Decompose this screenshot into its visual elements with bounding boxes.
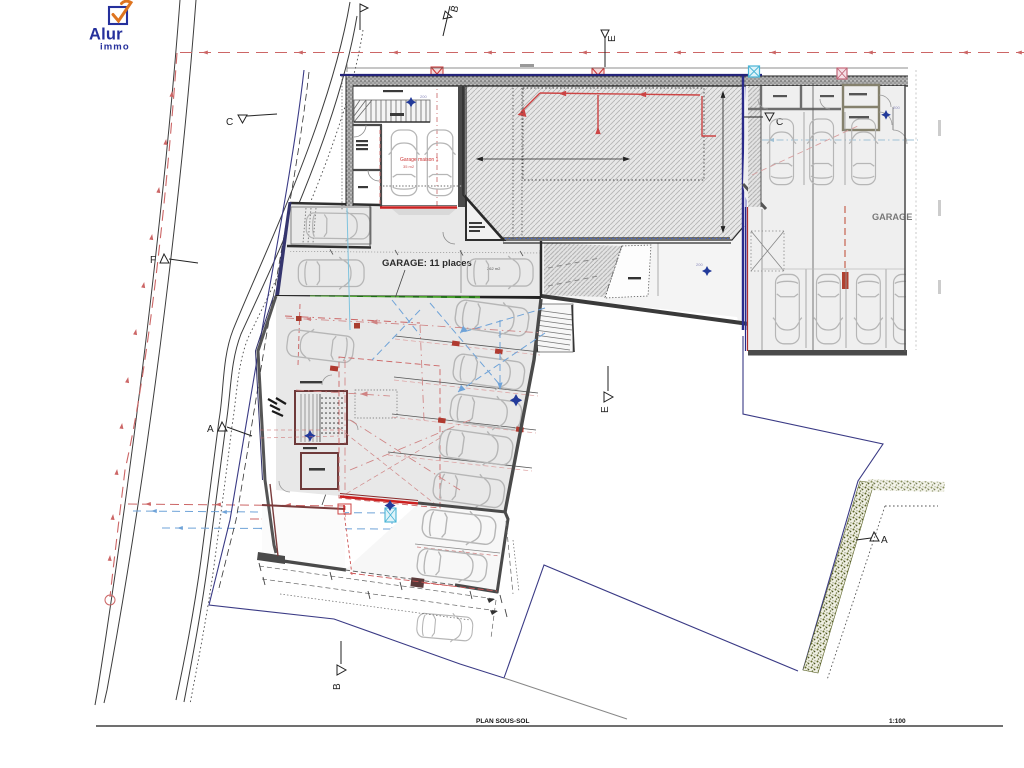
svg-text:GARAGE: GARAGE bbox=[872, 212, 912, 222]
svg-text:B: B bbox=[332, 683, 343, 690]
svg-text:C: C bbox=[226, 117, 233, 128]
svg-text:200: 200 bbox=[696, 262, 703, 267]
svg-text:A: A bbox=[881, 535, 888, 546]
svg-text:E: E bbox=[607, 35, 618, 42]
svg-text:35 m2: 35 m2 bbox=[403, 164, 415, 169]
svg-text:1:100: 1:100 bbox=[889, 718, 906, 725]
svg-text:F: F bbox=[150, 255, 156, 266]
svg-text:immo: immo bbox=[100, 42, 130, 53]
svg-text:E: E bbox=[600, 406, 611, 413]
svg-text:GARAGE: 11 places: GARAGE: 11 places bbox=[382, 258, 472, 269]
svg-text:200: 200 bbox=[420, 94, 427, 99]
svg-text:200: 200 bbox=[893, 105, 900, 110]
svg-text:Garage maison 1: Garage maison 1 bbox=[400, 157, 439, 163]
svg-text:A: A bbox=[207, 424, 214, 435]
svg-text:PLAN SOUS-SOL: PLAN SOUS-SOL bbox=[476, 718, 529, 725]
